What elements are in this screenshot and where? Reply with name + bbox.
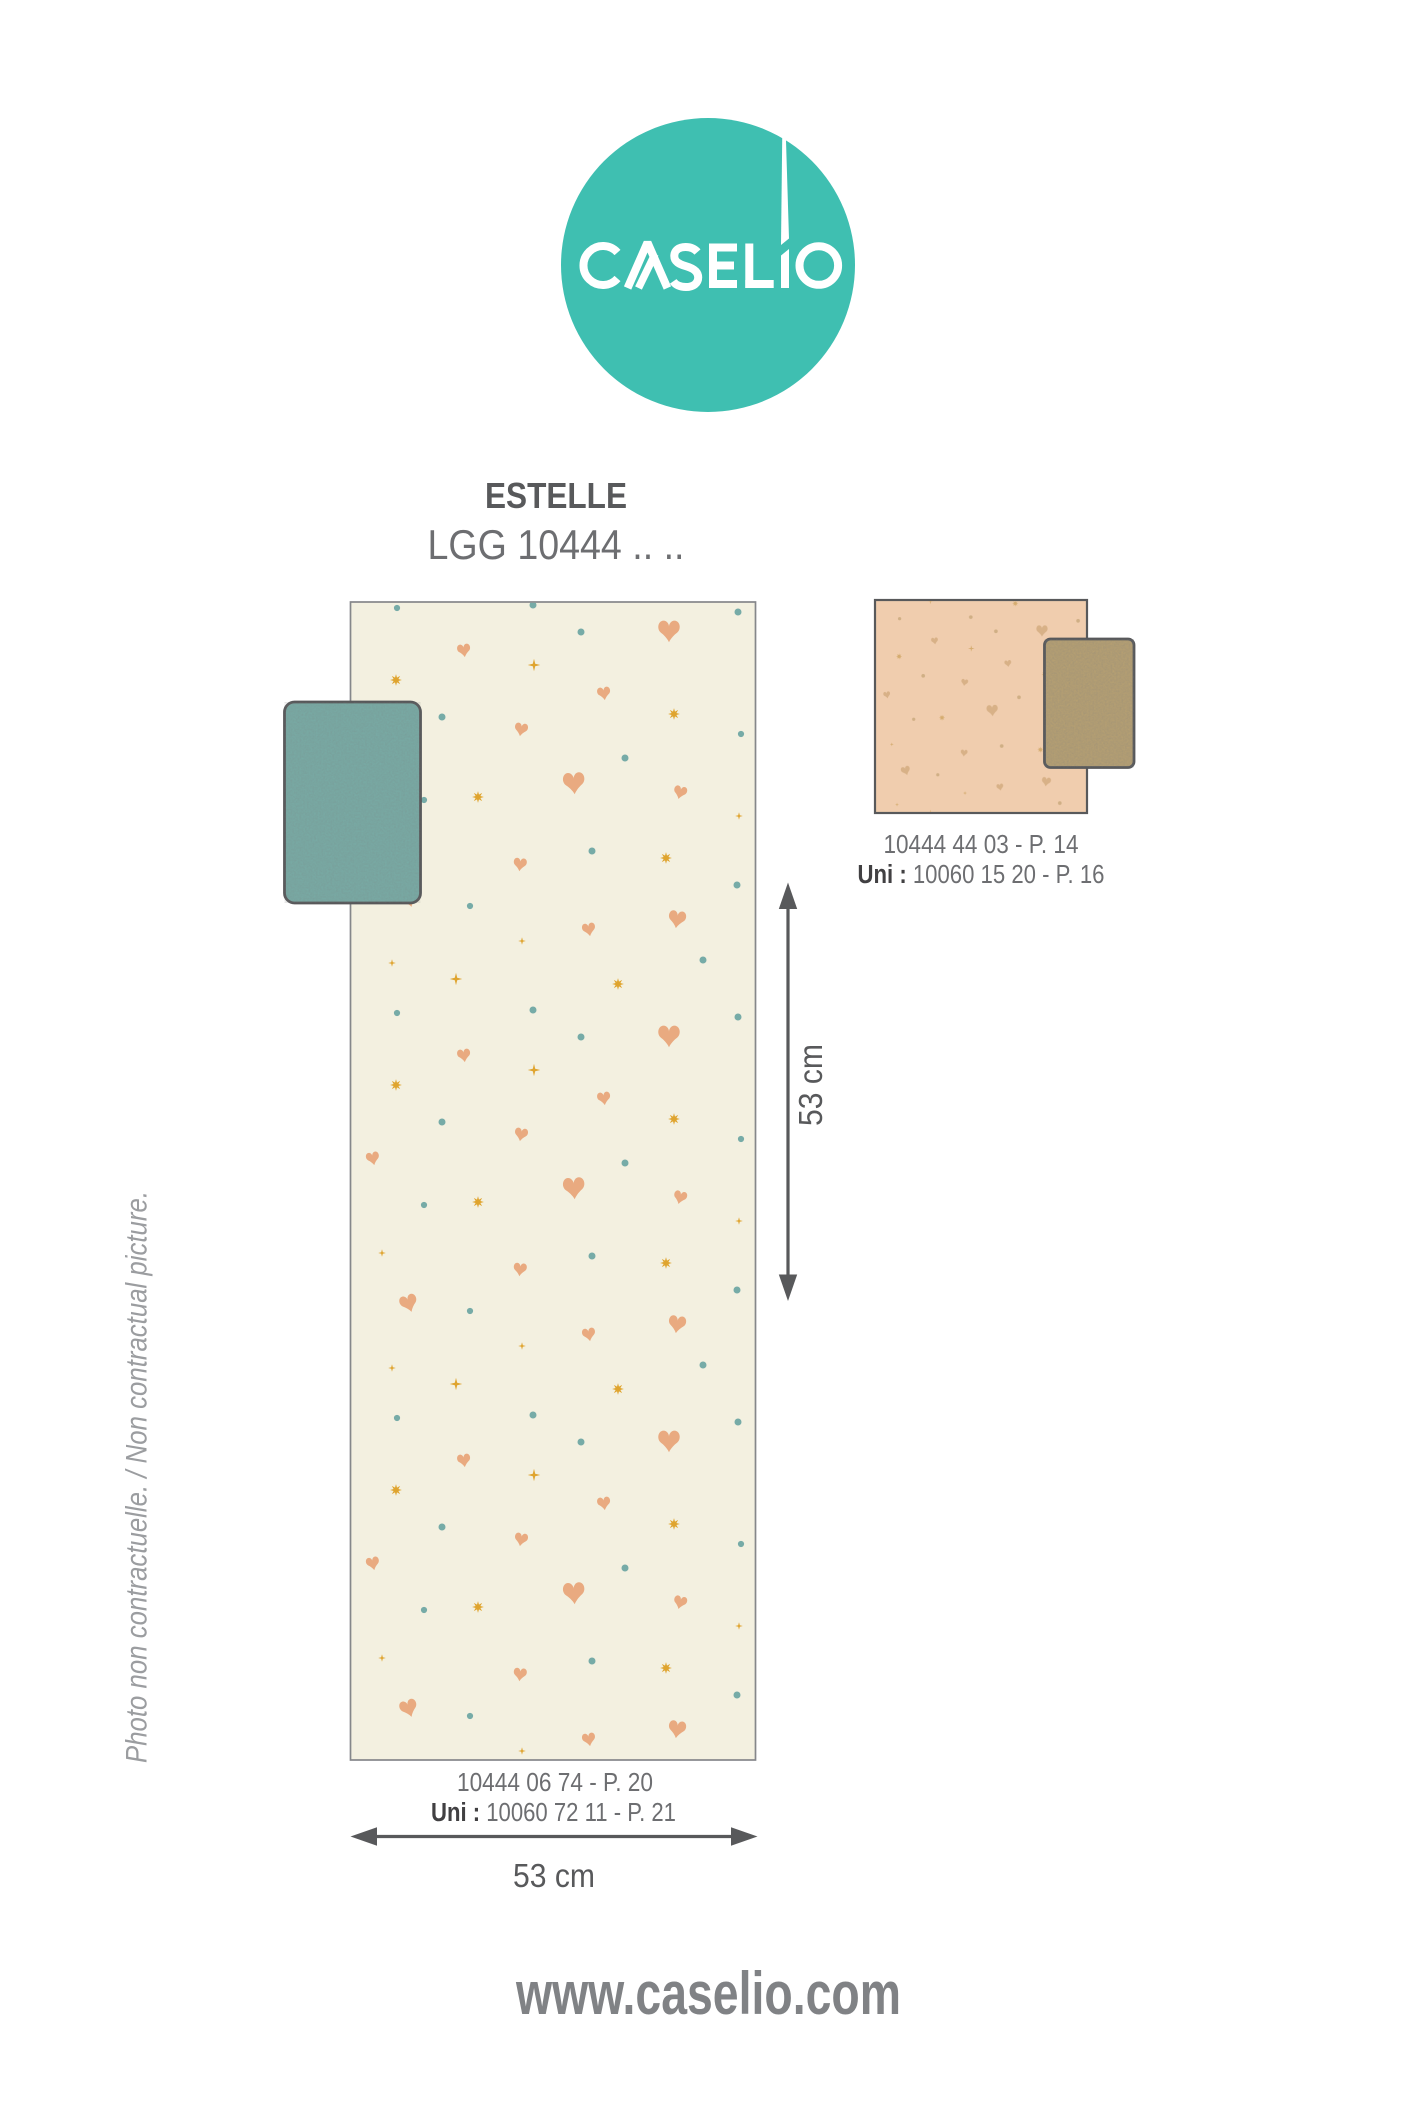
- svg-text:Uni : 10060 15 20 - P. 16: Uni : 10060 15 20 - P. 16: [858, 861, 1105, 889]
- svg-text:Photo non contractuelle. / Non: Photo non contractuelle. / Non contractu…: [121, 1191, 154, 1763]
- svg-text:10444 44 03 - P. 14: 10444 44 03 - P. 14: [884, 831, 1079, 859]
- svg-text:www.caselio.com: www.caselio.com: [515, 1960, 901, 2027]
- svg-text:10444 06 74 - P. 20: 10444 06 74 - P. 20: [457, 1769, 653, 1797]
- svg-text:LGG 10444 .. ..: LGG 10444 .. ..: [428, 521, 685, 568]
- svg-text:53 cm: 53 cm: [792, 1044, 829, 1126]
- svg-text:ESTELLE: ESTELLE: [485, 475, 627, 516]
- svg-text:53 cm: 53 cm: [513, 1857, 595, 1894]
- svg-text:Uni : 10060 72 11 - P. 21: Uni : 10060 72 11 - P. 21: [431, 1799, 676, 1827]
